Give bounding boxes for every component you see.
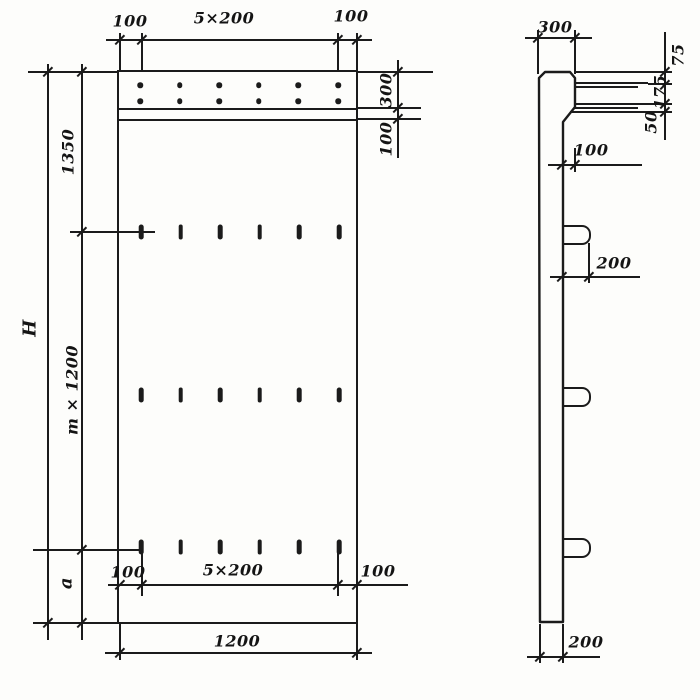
dim-front-band-offset: 100 (377, 122, 396, 157)
dimension-line (575, 103, 648, 105)
dim-front-overall-width: 1200 (214, 632, 261, 651)
lifting-loop (563, 225, 591, 245)
dimension-line (575, 71, 672, 72)
dim-side-step-depth: 100 (574, 141, 609, 160)
dim-front-overall-height: H (20, 319, 41, 337)
dimension-line (357, 107, 421, 108)
dimension-line (575, 82, 648, 84)
dimension-line (28, 71, 118, 72)
dim-side-bottom-width: 200 (569, 633, 604, 652)
lifting-loop (563, 538, 591, 558)
dim-front-bottom-right-margin: 100 (361, 562, 396, 581)
dim-front-top-spacing: 5×200 (194, 9, 254, 28)
dim-side-chain-bottom: 50 (642, 110, 661, 133)
dim-front-bottom-segment: a (56, 577, 77, 589)
dim-front-top-right-margin: 100 (334, 7, 369, 26)
dimension-line (357, 118, 421, 119)
lifting-loop (563, 387, 591, 407)
dim-side-loop-projection: 200 (597, 254, 632, 273)
dim-front-bottom-spacing: 5×200 (203, 561, 263, 580)
dimension-line (105, 652, 372, 654)
dim-front-top-segment: 1350 (59, 129, 78, 176)
dimension-line (47, 64, 49, 640)
dimension-line (337, 553, 338, 596)
dim-front-middle-segment: m × 1200 (63, 345, 82, 435)
dimension-line (108, 584, 408, 586)
dim-front-top-left-margin: 100 (113, 12, 148, 31)
dimension-line (575, 107, 638, 108)
dim-side-chain-middle: 175 (651, 75, 670, 110)
technical-drawing-canvas: 100 5×200 100 300 100 1350 m × 1200 H a … (0, 0, 700, 700)
dim-side-top-width: 300 (538, 18, 573, 37)
dimension-line (106, 39, 372, 41)
dimension-line (33, 549, 143, 550)
dim-front-bottom-left-margin: 100 (111, 563, 146, 582)
dim-side-chain-top: 75 (669, 43, 688, 66)
dimension-line (575, 86, 638, 87)
dim-front-band-height: 300 (377, 73, 396, 108)
